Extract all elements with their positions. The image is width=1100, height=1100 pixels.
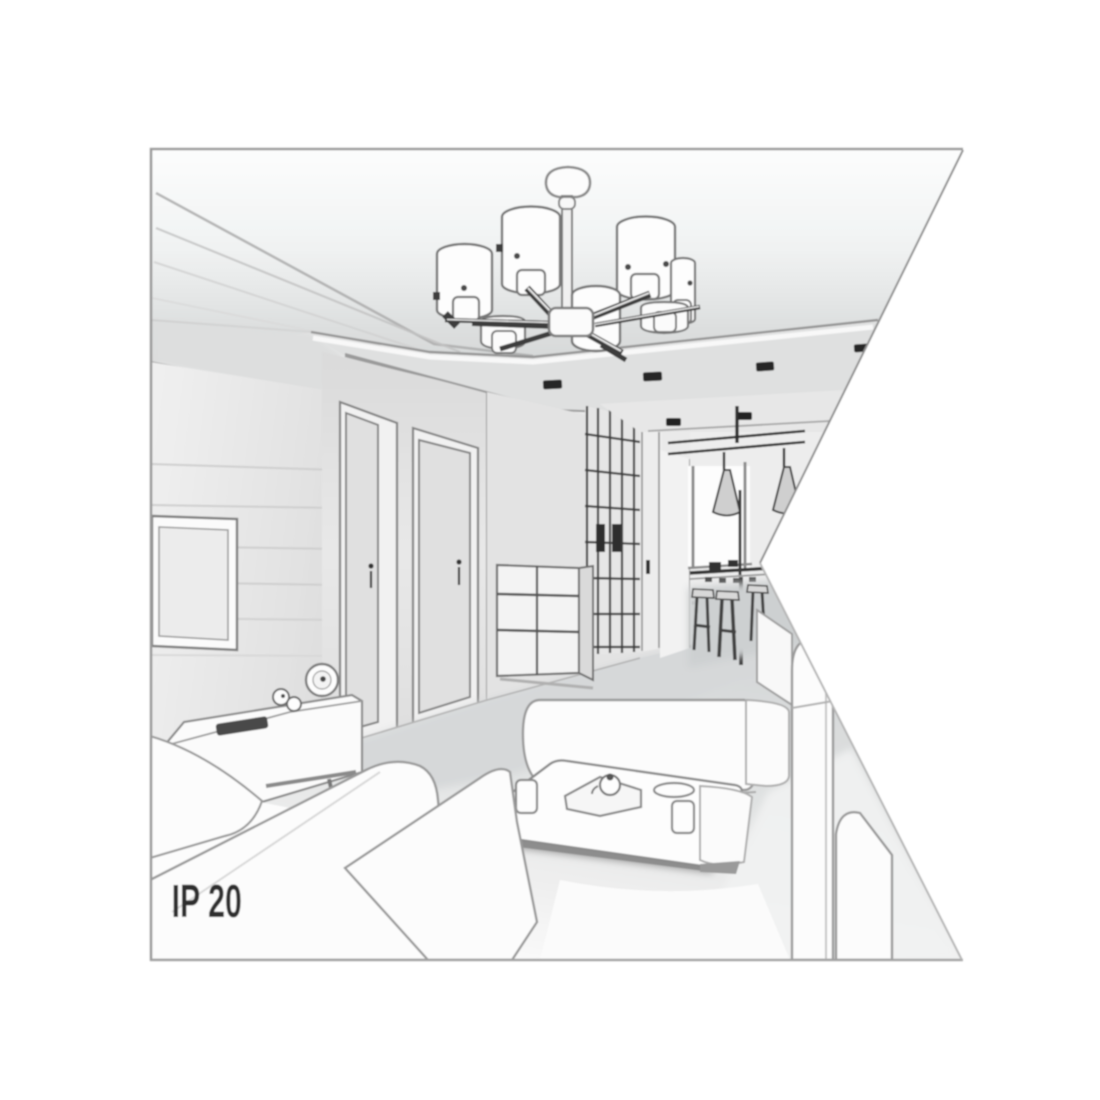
svg-text:IP 20: IP 20 xyxy=(172,877,242,928)
